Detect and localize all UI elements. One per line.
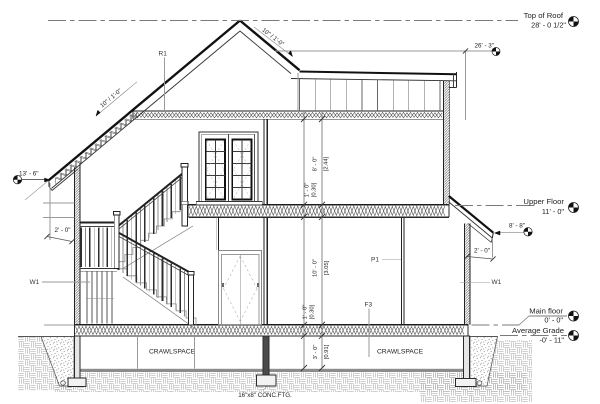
svg-text:W1: W1 [492,279,502,286]
svg-text:26' - 3": 26' - 3" [475,43,495,50]
svg-text:28' - 0 1/2": 28' - 0 1/2" [531,21,566,30]
svg-text:P1: P1 [371,257,379,264]
svg-text:CRAWLSPACE: CRAWLSPACE [149,348,196,355]
svg-text:13' - 6": 13' - 6" [19,171,39,178]
svg-text:Upper Floor: Upper Floor [523,197,564,206]
svg-text:CRAWLSPACE: CRAWLSPACE [377,348,424,355]
svg-text:R1: R1 [159,51,168,58]
svg-text:[2.44]: [2.44] [324,156,330,171]
svg-text:[3.05]: [3.05] [324,260,330,275]
svg-text:1' - 0": 1' - 0" [303,305,309,320]
svg-text:Average Grade: Average Grade [512,326,564,335]
svg-text:10' - 0": 10' - 0" [313,259,319,277]
svg-text:3' - 0": 3' - 0" [313,345,319,360]
svg-text:16"x8" CONC.FTG.: 16"x8" CONC.FTG. [238,392,292,399]
svg-text:W1: W1 [30,279,40,286]
svg-text:11' - 0": 11' - 0" [542,207,565,216]
svg-text:2' - 0": 2' - 0" [55,227,71,234]
svg-text:-0' - 11": -0' - 11" [539,335,564,344]
svg-text:0' - 0": 0' - 0" [544,316,563,325]
svg-text:Main floor: Main floor [529,306,563,315]
svg-text:[0.91]: [0.91] [324,344,330,359]
svg-text:8' - 8": 8' - 8" [509,223,525,230]
svg-text:2' - 0": 2' - 0" [474,247,490,254]
svg-text:[0.30]: [0.30] [310,304,316,319]
svg-text:F3: F3 [365,302,373,309]
svg-text:Top of Roof: Top of Roof [524,11,564,20]
svg-text:8' - 0": 8' - 0" [313,157,319,172]
svg-text:[0.30]: [0.30] [312,182,318,197]
svg-text:1' - 0": 1' - 0" [305,183,311,198]
